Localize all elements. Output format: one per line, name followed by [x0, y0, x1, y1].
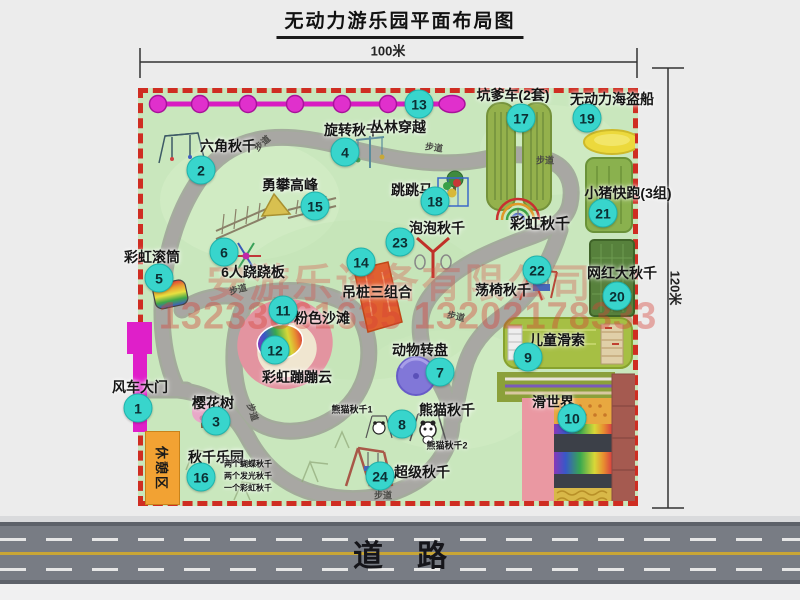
facility-label-17: 坑爹车(2套): [476, 85, 549, 105]
facility-label-6: 6人跷跷板: [221, 262, 285, 282]
facility-badge-9[interactable]: 9: [514, 343, 543, 372]
extra-label-5: 一个彩虹秋千: [224, 483, 272, 494]
extra-label-1: 熊猫秋千1: [331, 403, 372, 416]
facility-badge-19[interactable]: 19: [573, 104, 602, 133]
facility-badge-3[interactable]: 3: [202, 407, 231, 436]
facility-label-2: 六角秋千: [200, 136, 256, 156]
facility-label-22: 荡椅秋千: [475, 280, 531, 300]
facility-badge-11[interactable]: 11: [269, 296, 298, 325]
facility-badge-1[interactable]: 1: [124, 394, 153, 423]
screenshot-root: 无动力游乐园平面布局图 100米 120米: [0, 0, 800, 600]
facility-badge-20[interactable]: 20: [603, 282, 632, 311]
facility-badge-18[interactable]: 18: [421, 187, 450, 216]
facility-badge-14[interactable]: 14: [347, 248, 376, 277]
facility-label-12: 彩虹蹦蹦云: [262, 367, 332, 387]
path-label-5: 步道: [446, 308, 466, 324]
facility-badge-16[interactable]: 16: [187, 463, 216, 492]
facility-label-24: 超级秋千: [394, 462, 450, 482]
facility-badge-6[interactable]: 6: [210, 238, 239, 267]
extra-label-2: 熊猫秋千2: [426, 439, 467, 452]
facility-badge-10[interactable]: 10: [558, 404, 587, 433]
facility-label-13: 丛林穿越: [370, 117, 426, 137]
facility-badge-24[interactable]: 24: [366, 462, 395, 491]
facility-badge-15[interactable]: 15: [301, 192, 330, 221]
extra-label-0: 彩虹秋千: [510, 213, 570, 234]
facility-badge-13[interactable]: 13: [405, 90, 434, 119]
path-label-4: 步道: [244, 401, 262, 422]
facility-badge-5[interactable]: 5: [145, 264, 174, 293]
facility-badge-17[interactable]: 17: [507, 104, 536, 133]
path-label-3: 步道: [228, 280, 249, 297]
facility-label-23: 泡泡秋千: [409, 218, 465, 238]
facility-label-14: 吊桩三组合: [342, 282, 412, 302]
facility-badge-12[interactable]: 12: [261, 336, 290, 365]
facility-badge-22[interactable]: 22: [523, 256, 552, 285]
facility-badge-4[interactable]: 4: [331, 138, 360, 167]
path-label-2: 步道: [536, 154, 554, 167]
facility-label-11: 粉色沙滩: [294, 308, 350, 328]
facility-badge-2[interactable]: 2: [187, 156, 216, 185]
path-label-1: 步道: [424, 139, 444, 154]
facility-badge-21[interactable]: 21: [589, 199, 618, 228]
facility-label-20: 网红大秋千: [587, 263, 657, 283]
markers-layer: 风车大门1六角秋千2樱花树3旋转秋千4彩虹滚筒56人跷跷板6动物转盘7熊猫秋千8…: [0, 0, 800, 600]
facility-badge-8[interactable]: 8: [388, 410, 417, 439]
path-label-6: 步道: [374, 489, 392, 502]
extra-label-3: 两个蝴蝶秋千: [224, 459, 272, 470]
facility-label-8: 熊猫秋千: [419, 400, 475, 420]
facility-badge-7[interactable]: 7: [426, 358, 455, 387]
facility-badge-23[interactable]: 23: [386, 228, 415, 257]
extra-label-4: 两个发光秋千: [224, 471, 272, 482]
